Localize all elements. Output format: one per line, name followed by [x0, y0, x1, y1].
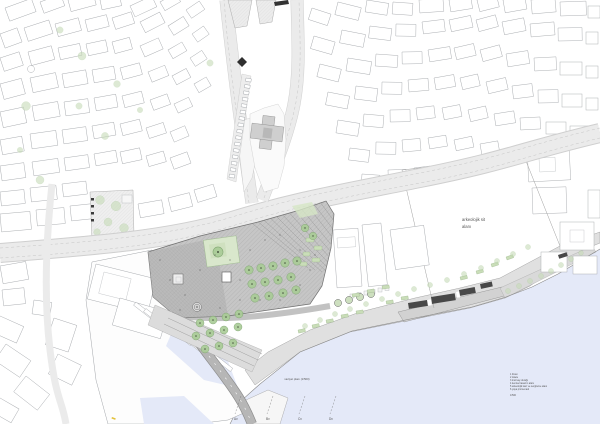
roundabout — [28, 66, 35, 73]
svg-text:Dv: Dv — [329, 417, 333, 421]
plaza-kiosk — [222, 272, 231, 282]
plan-caption: vaziyet planı (1/500) — [284, 377, 309, 381]
planter-circle — [345, 296, 352, 303]
site-plan-drawing: arkeolojik sit alanı vaziyet planı (1/50… — [0, 0, 600, 424]
site-plan-page: arkeolojik sit alanı vaziyet planı (1/50… — [0, 0, 600, 424]
tram-platforms — [228, 0, 289, 28]
svg-text:Av: Av — [234, 417, 238, 421]
building-fabric-southwest — [0, 261, 81, 422]
legend-scale-label: 1/500 — [510, 394, 517, 397]
plaza-kiosk — [173, 274, 183, 284]
archaeological-site-label-line2: alanı — [462, 224, 471, 229]
legend-item-5: 6 yaya promenadı — [510, 388, 529, 391]
svg-text:Cv: Cv — [298, 417, 302, 421]
svg-text:Bv: Bv — [266, 417, 270, 421]
archaeological-site-label: arkeolojik sit — [462, 217, 486, 222]
planter-circle — [334, 299, 341, 306]
